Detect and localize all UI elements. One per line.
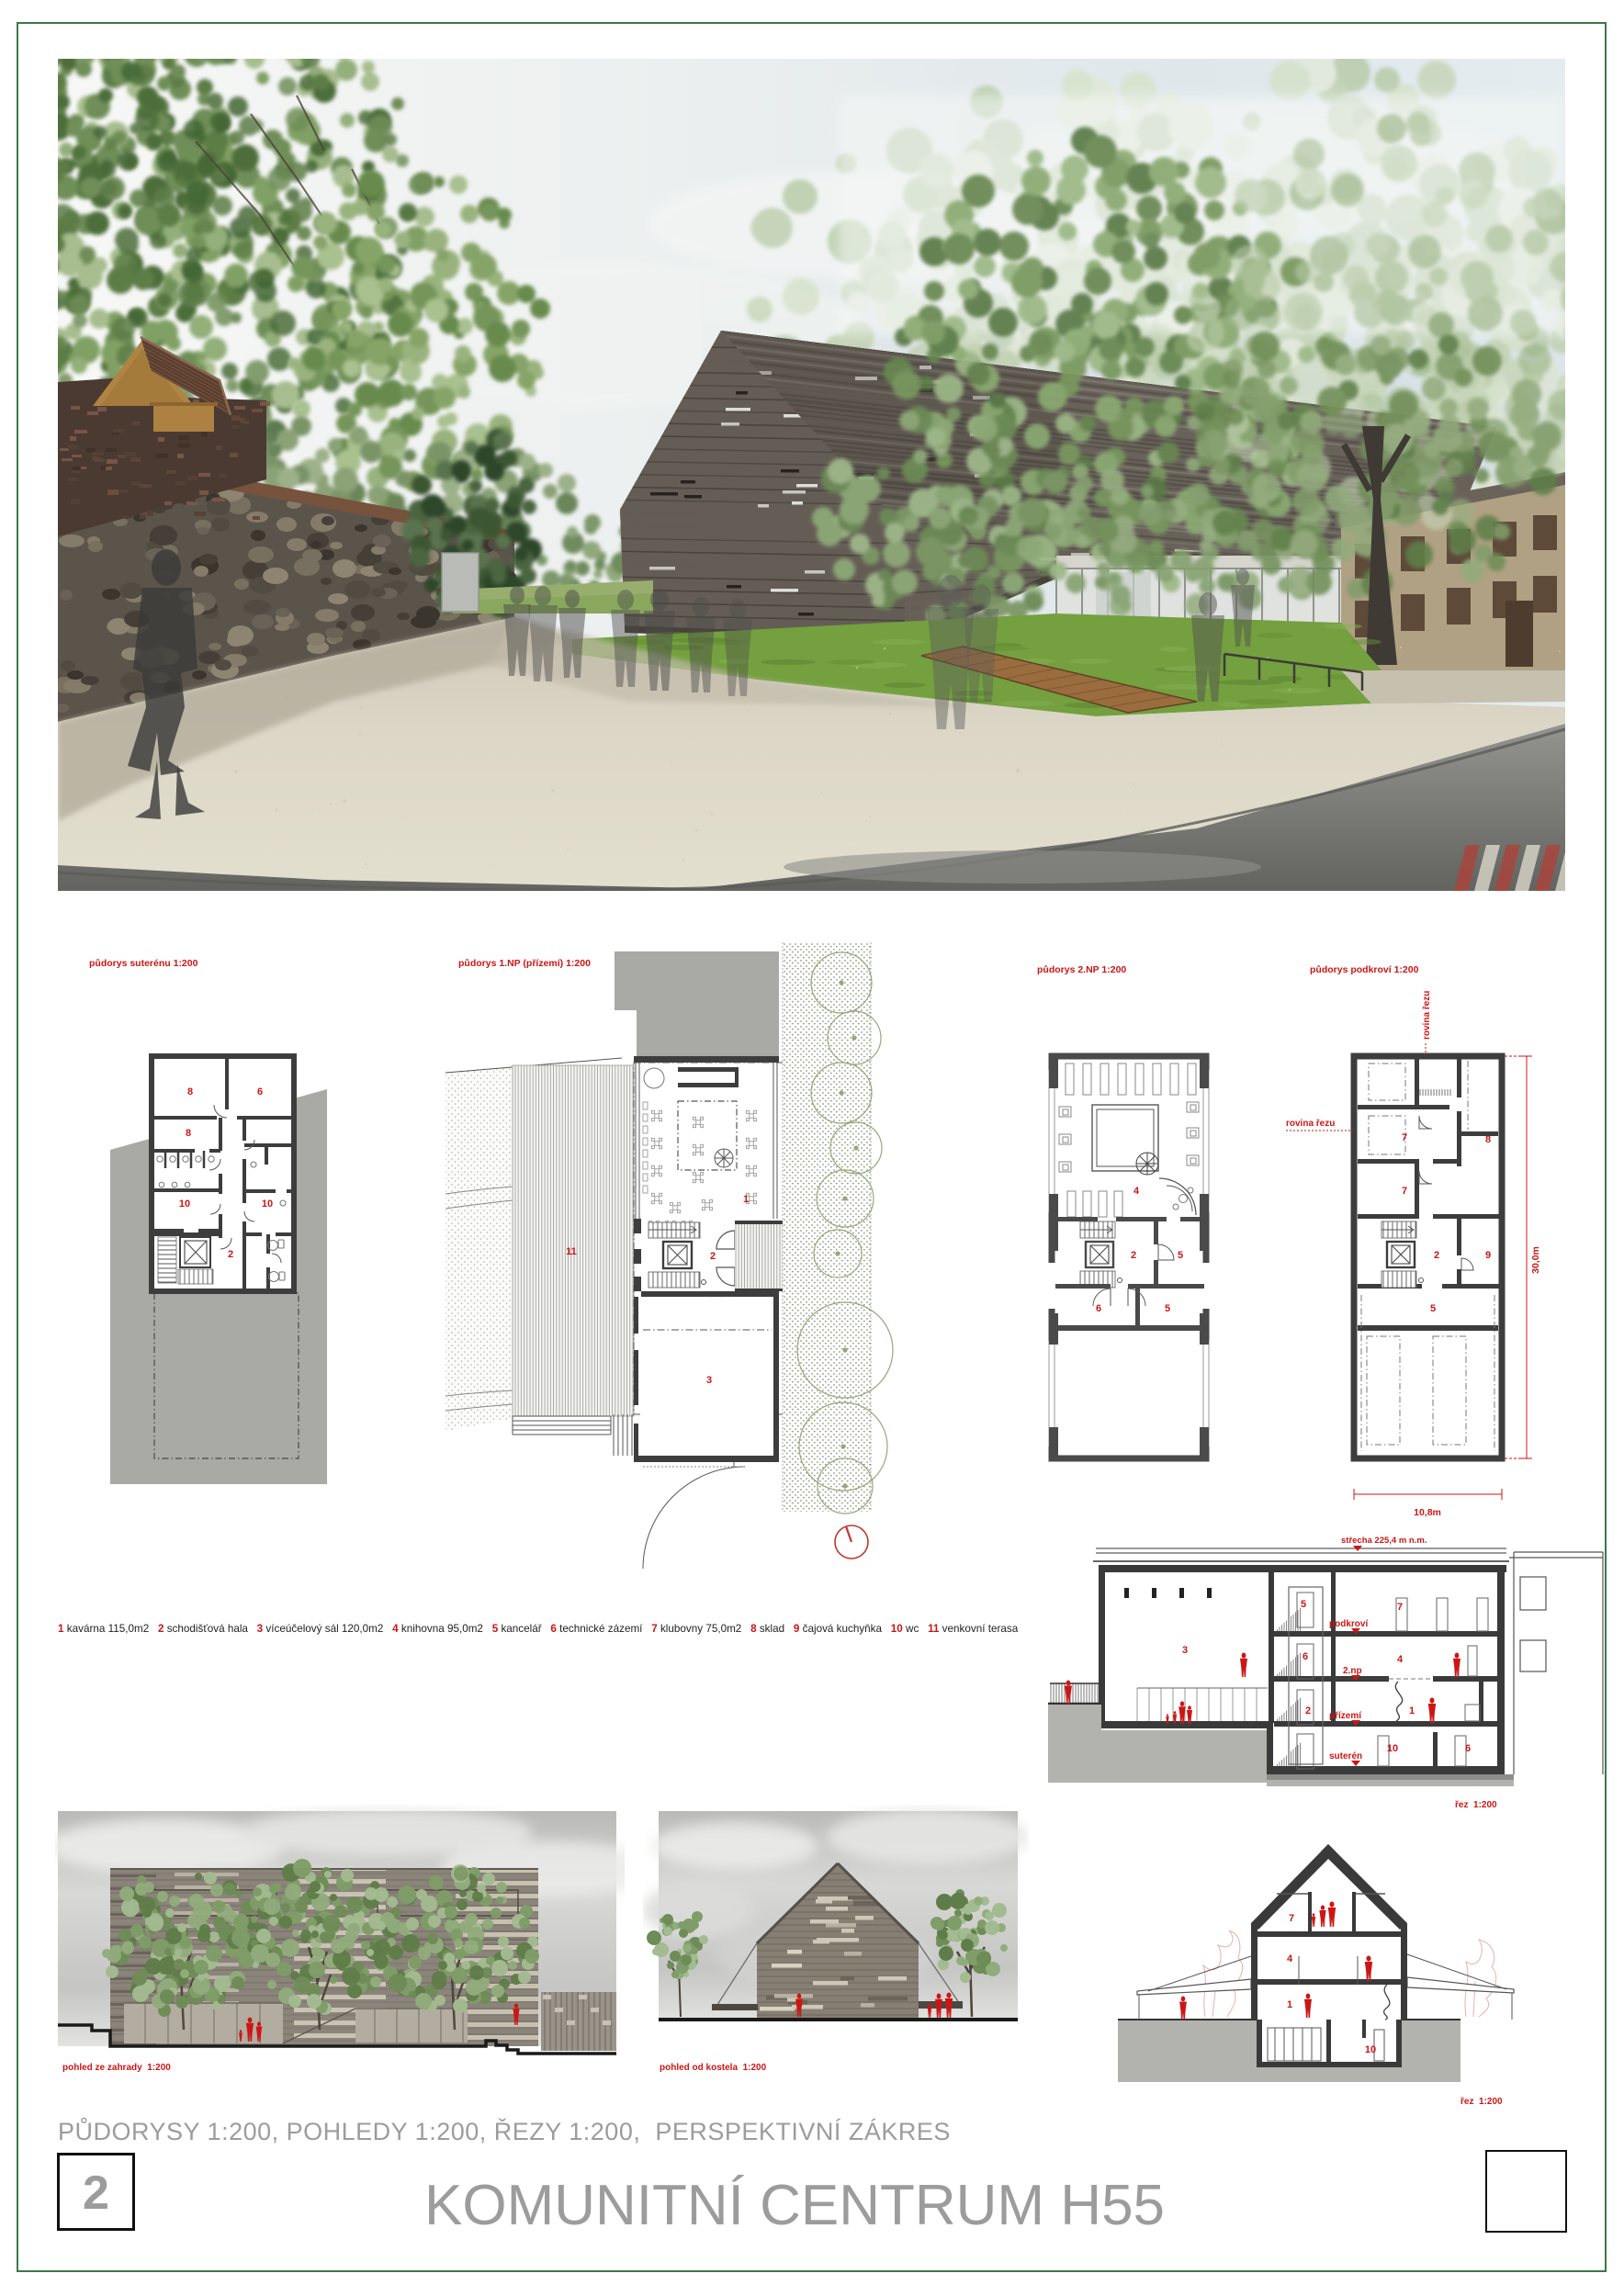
svg-text:půdorys suterénu 1:200: půdorys suterénu 1:200	[89, 958, 198, 969]
svg-text:7: 7	[1289, 1913, 1294, 1924]
svg-text:2: 2	[710, 1251, 716, 1262]
svg-text:4: 4	[1287, 1953, 1293, 1964]
svg-text:3: 3	[1182, 1645, 1188, 1656]
svg-text:7: 7	[1402, 1132, 1407, 1143]
svg-text:6: 6	[1303, 1651, 1308, 1662]
svg-text:10: 10	[1365, 2044, 1376, 2055]
svg-text:6: 6	[257, 1086, 263, 1097]
svg-text:1: 1	[743, 1194, 749, 1205]
svg-text:suterén: suterén	[1329, 1751, 1362, 1761]
svg-text:11: 11	[566, 1246, 577, 1257]
svg-text:5: 5	[1178, 1250, 1183, 1261]
svg-text:rovina řezu: rovina řezu	[1422, 991, 1432, 1040]
svg-text:10: 10	[262, 1199, 273, 1210]
svg-text:10: 10	[179, 1199, 190, 1210]
svg-text:8: 8	[186, 1128, 191, 1139]
svg-text:střecha 225,4 m n.m.: střecha 225,4 m n.m.	[1341, 1536, 1427, 1546]
svg-text:7: 7	[1402, 1186, 1407, 1197]
svg-text:přízemí: přízemí	[1329, 1711, 1362, 1721]
svg-text:podkroví: podkroví	[1329, 1619, 1369, 1629]
svg-text:3: 3	[706, 1375, 712, 1386]
svg-text:2.np: 2.np	[1343, 1666, 1362, 1676]
svg-text:2: 2	[228, 1249, 233, 1260]
svg-text:rovina řezu: rovina řezu	[1286, 1119, 1335, 1129]
svg-text:30,0m: 30,0m	[1530, 1246, 1541, 1274]
svg-text:8: 8	[187, 1086, 193, 1097]
svg-text:půdorys podkroví 1:200: půdorys podkroví 1:200	[1310, 964, 1419, 975]
svg-text:2: 2	[1305, 1705, 1311, 1716]
svg-text:7: 7	[1397, 1602, 1403, 1613]
svg-text:půdorys 2.NP 1:200: půdorys 2.NP 1:200	[1037, 964, 1126, 975]
svg-text:6: 6	[1096, 1303, 1101, 1314]
svg-text:1: 1	[1287, 1999, 1292, 2010]
svg-text:8: 8	[1485, 1134, 1491, 1145]
svg-text:1: 1	[1409, 1705, 1415, 1716]
svg-text:5: 5	[1301, 1599, 1306, 1610]
svg-text:4: 4	[1397, 1654, 1404, 1665]
svg-text:5: 5	[1165, 1303, 1170, 1314]
svg-text:2: 2	[1434, 1250, 1439, 1261]
svg-text:2: 2	[1131, 1250, 1136, 1261]
svg-text:půdorys 1.NP (přízemí) 1:200: půdorys 1.NP (přízemí) 1:200	[458, 958, 591, 969]
svg-text:10: 10	[1387, 1743, 1398, 1754]
svg-text:9: 9	[1485, 1250, 1491, 1261]
svg-text:5: 5	[1430, 1303, 1436, 1314]
svg-text:4: 4	[1133, 1186, 1140, 1197]
svg-text:6: 6	[1465, 1743, 1471, 1754]
